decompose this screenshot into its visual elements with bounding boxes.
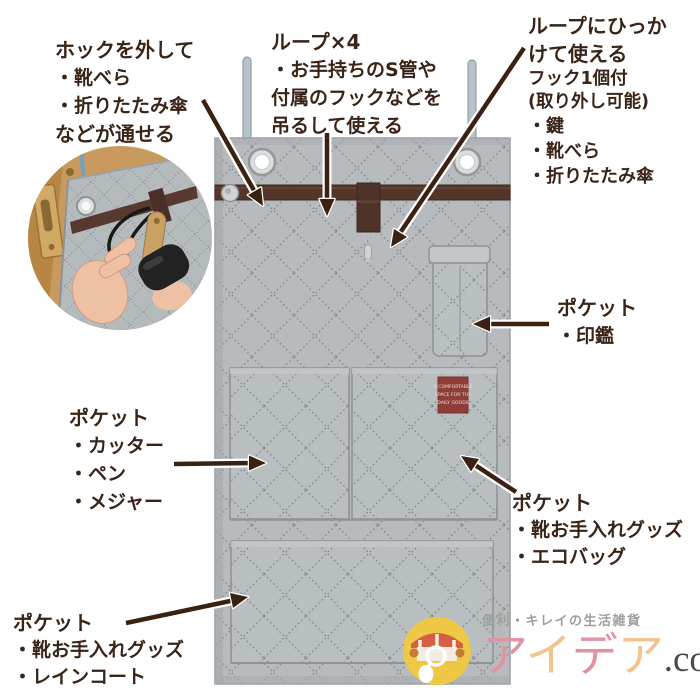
annotation-item: 付属のフックなどを bbox=[271, 84, 442, 112]
inset-grommet bbox=[77, 197, 95, 215]
logo-brand-char: ア bbox=[618, 628, 664, 682]
snap-button bbox=[222, 185, 239, 202]
seal-pocket-flap bbox=[429, 246, 490, 263]
annotation-item: ・靴お手入れグッズ bbox=[512, 517, 683, 544]
brand-label: A COMFORTABLE SPACE FOR THE DAILY GOODS bbox=[434, 377, 473, 413]
annotation-item: ・メジャー bbox=[69, 488, 164, 516]
logo-brand-char: イ bbox=[526, 628, 572, 682]
annotation-pocket-rain: ポケット ・靴お手入れグッズ ・レインコート bbox=[13, 610, 184, 691]
logo-mark bbox=[403, 617, 471, 685]
middle-right-pocket bbox=[352, 368, 497, 519]
annotation-item: ・カッター bbox=[69, 432, 164, 460]
logo-brand: アイデア.com bbox=[482, 632, 700, 678]
site-logo: 便利・キレイの生活雑貨 アイデア.com bbox=[482, 610, 700, 678]
annotation-pocket-seal: ポケット ・印鑑 bbox=[557, 294, 637, 350]
annotation-loops: ループ×4 ・お手持ちのS管や 付属のフックなどを 吊るして使える bbox=[271, 28, 442, 140]
brand-label-line: A COMFORTABLE bbox=[434, 384, 473, 390]
annotation-subtitle: フック1個付 bbox=[528, 68, 667, 91]
logo-tagline: 便利・キレイの生活雑貨 bbox=[482, 610, 700, 629]
annotation-footer: などが通せる bbox=[55, 120, 194, 148]
product-infographic: A COMFORTABLE SPACE FOR THE DAILY GOODS bbox=[0, 0, 700, 700]
annotation-item: ・エコバッグ bbox=[512, 544, 683, 571]
annotation-pocket-tools: ポケット ・カッター ・ペン ・メジャー bbox=[69, 404, 164, 516]
annotation-title: ループ×4 bbox=[271, 28, 442, 56]
middle-left-pocket bbox=[230, 368, 349, 519]
annotation-item: ・折りたたみ傘 bbox=[55, 92, 194, 120]
annotation-title: ループにひっか bbox=[528, 12, 667, 40]
annotation-title: ポケット bbox=[557, 294, 637, 322]
annotation-item: ・靴お手入れグッズ bbox=[13, 637, 184, 664]
annotation-title: ポケット bbox=[13, 610, 184, 637]
annotation-hook-included: ループにひっか けて使える フック1個付 (取り外し可能) ・鍵 ・靴べら ・折… bbox=[528, 12, 667, 189]
annotation-item: ・ペン bbox=[69, 460, 164, 488]
logo-brand-char: デ bbox=[572, 628, 618, 682]
annotation-title: ホックを外して bbox=[55, 36, 194, 64]
annotation-title: ポケット bbox=[69, 404, 164, 432]
annotation-title: けて使える bbox=[528, 40, 667, 68]
annotation-title: ポケット bbox=[512, 490, 683, 517]
brand-label-line: SPACE FOR THE bbox=[435, 392, 471, 398]
annotation-hock: ホックを外して ・靴べら ・折りたたみ傘 などが通せる bbox=[55, 36, 194, 148]
seal-pocket bbox=[429, 246, 490, 356]
inset-photo bbox=[12, 130, 213, 332]
annotation-item: ・靴べら bbox=[528, 139, 667, 164]
annotation-item: ・レインコート bbox=[13, 664, 184, 691]
annotation-item: ・靴べら bbox=[55, 64, 194, 92]
annotation-item: ・お手持ちのS管や bbox=[271, 56, 442, 84]
annotation-item: ・鍵 bbox=[528, 114, 667, 139]
arrow-pocket-seal bbox=[473, 317, 549, 332]
logo-brand-char: ア bbox=[482, 628, 526, 682]
hanging-loop bbox=[357, 183, 380, 232]
logo-brand-suffix: .com bbox=[664, 639, 700, 680]
annotation-pocket-eco: ポケット ・靴お手入れグッズ ・エコバッグ bbox=[512, 490, 683, 571]
annotation-subtitle: (取り外し可能) bbox=[528, 91, 667, 114]
grommet-left bbox=[249, 149, 275, 175]
brand-label-line: DAILY GOODS bbox=[437, 400, 468, 406]
annotation-item: ・印鑑 bbox=[557, 322, 637, 350]
body-bottom-hem bbox=[215, 676, 510, 684]
annotation-item: ・折りたたみ傘 bbox=[528, 164, 667, 189]
annotation-item: 吊るして使える bbox=[271, 112, 442, 140]
